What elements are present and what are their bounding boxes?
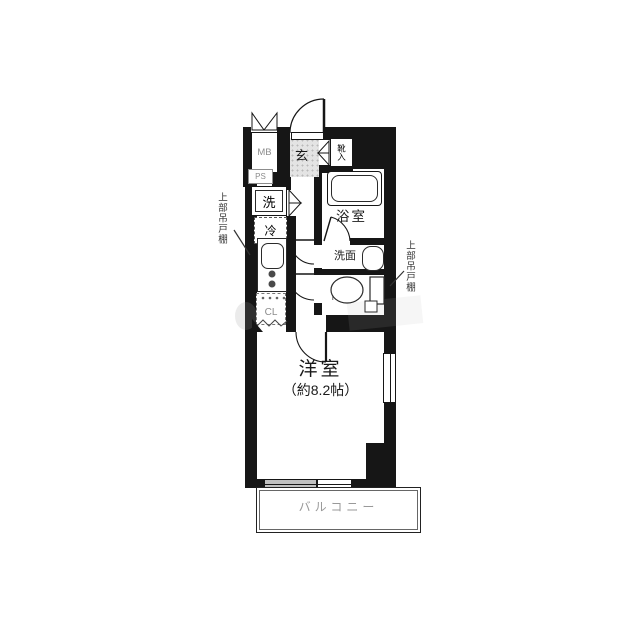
shoe-bifold-door	[318, 141, 329, 153]
washer-bifold-door	[289, 203, 301, 216]
plan-linework	[0, 0, 640, 640]
mb-bifold-door	[264, 113, 277, 130]
pipe-space: PS	[248, 169, 273, 184]
main-room-size: （約8.2帖）	[283, 383, 358, 398]
window-right-line	[390, 354, 391, 402]
shoe-bifold-door	[318, 153, 329, 165]
bathroom-label: 浴室	[336, 210, 367, 224]
wall	[286, 216, 296, 332]
wall	[322, 269, 396, 275]
wall	[314, 303, 322, 315]
entrance-label: 玄	[295, 149, 308, 163]
bathroom-door-leaf	[324, 217, 331, 241]
washer-bifold-door	[289, 190, 301, 203]
bathtub-inner	[331, 175, 378, 202]
meter-box-label: MB	[257, 147, 271, 158]
meter-box: MB	[251, 132, 278, 173]
refrigerator-label: 冷	[264, 222, 276, 239]
window-bottom-left-line	[265, 484, 316, 485]
main-room-door-arc	[296, 332, 326, 362]
toilet-label: トイレ	[329, 293, 359, 304]
kitchen-sink	[261, 243, 284, 269]
entrance-threshold	[291, 132, 324, 140]
balcony: バルコニー	[256, 487, 421, 533]
window-bottom-right-line	[318, 484, 351, 485]
main-room-label: 洋室 （約8.2帖）	[257, 360, 384, 398]
bathtub	[327, 171, 382, 206]
washing-machine-label: 洗	[262, 192, 275, 211]
toilet-paper-box	[365, 301, 377, 312]
washing-machine: 洗	[251, 186, 287, 216]
wall	[314, 268, 322, 275]
entrance-door-arc	[290, 99, 324, 133]
wall	[326, 315, 396, 332]
wall	[314, 238, 322, 245]
structural-column	[366, 443, 396, 480]
window-right	[383, 353, 396, 403]
wall	[350, 238, 396, 245]
pipe-space-label: PS	[255, 172, 266, 181]
closet: CL	[256, 293, 286, 325]
main-room-name: 洋室	[298, 360, 342, 380]
washbasin	[362, 246, 384, 271]
upper-cupboard-left-label: 上部吊戸棚	[216, 192, 226, 245]
washroom-label: 洗面	[334, 251, 356, 263]
balcony-inner-rail	[259, 490, 418, 530]
closet-label: CL	[265, 307, 278, 318]
shoe-cabinet: 靴入	[330, 138, 353, 167]
upper-cupboard-right-label: 上部吊戸棚	[404, 240, 414, 293]
toilet-tank	[370, 277, 384, 304]
wall	[350, 127, 396, 169]
mb-bifold-door	[252, 113, 264, 130]
floor-plan-canvas: 玄 MB 靴入 PS 洗 冷 CL 浴室 洗面 トイレ 洋室 （約8.2帖）	[0, 0, 640, 640]
shoe-cabinet-label: 靴入	[336, 144, 348, 161]
